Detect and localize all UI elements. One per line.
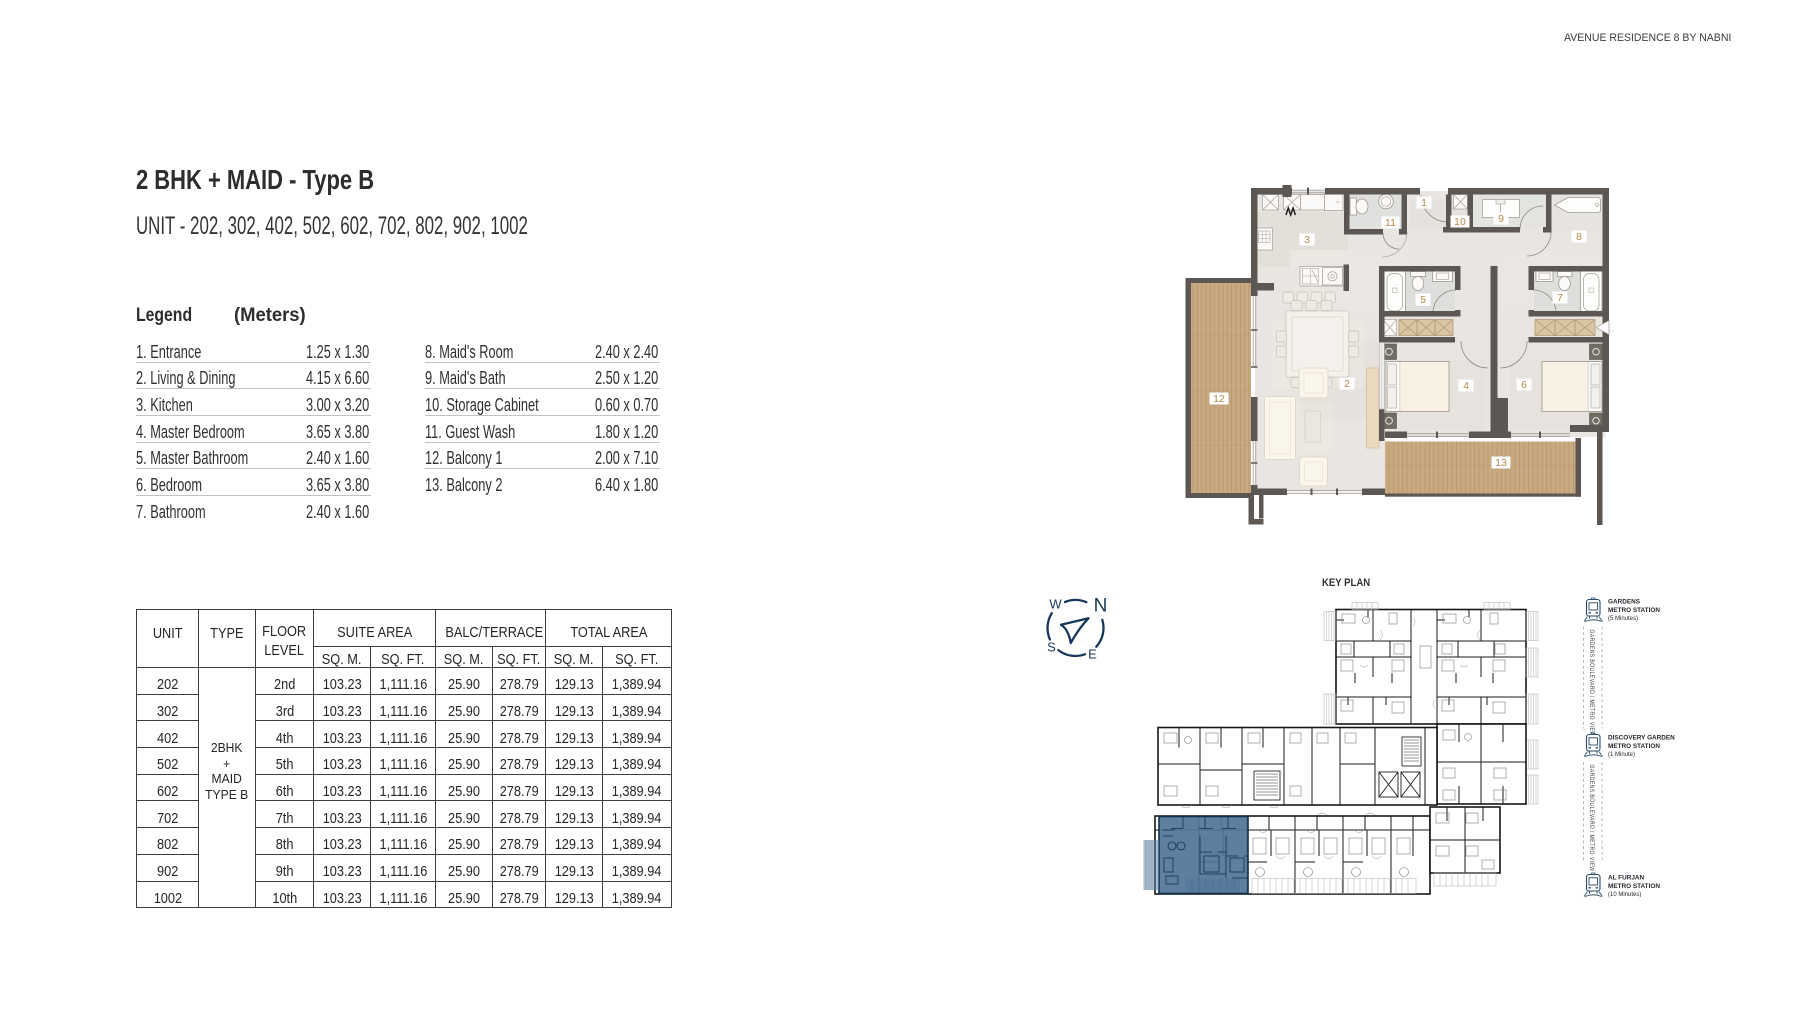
svg-text:METRO STATION: METRO STATION — [1608, 607, 1660, 614]
svg-text:10: 10 — [1454, 216, 1466, 228]
svg-text:3: 3 — [1304, 234, 1310, 246]
svg-text:11: 11 — [1385, 217, 1396, 229]
svg-text:2: 2 — [1344, 378, 1350, 390]
svg-text:GARDENS BOULEVARD / METRO VIEW: GARDENS BOULEVARD / METRO VIEW — [1588, 765, 1595, 872]
svg-text:1: 1 — [1421, 197, 1427, 209]
svg-text:12: 12 — [1213, 393, 1225, 405]
svg-text:(10 Minutes): (10 Minutes) — [1608, 892, 1641, 898]
svg-text:DISCOVERY GARDEN: DISCOVERY GARDEN — [1608, 735, 1675, 742]
svg-text:W: W — [1049, 597, 1062, 612]
svg-text:8: 8 — [1576, 231, 1582, 243]
svg-text:4: 4 — [1463, 380, 1469, 392]
svg-text:GARDENS BOULEVARD / METRO VIEW: GARDENS BOULEVARD / METRO VIEW — [1588, 630, 1595, 737]
svg-text:N: N — [1094, 596, 1108, 617]
svg-text:5: 5 — [1420, 294, 1426, 306]
svg-text:13: 13 — [1495, 457, 1507, 469]
svg-text:GARDENS: GARDENS — [1608, 599, 1641, 606]
svg-text:7: 7 — [1557, 292, 1563, 304]
svg-text:(1 Minute): (1 Minute) — [1608, 752, 1635, 758]
svg-text:METRO STATION: METRO STATION — [1608, 743, 1660, 750]
svg-text:METRO STATION: METRO STATION — [1608, 883, 1660, 890]
svg-text:6: 6 — [1521, 379, 1527, 391]
svg-text:S: S — [1047, 640, 1056, 655]
svg-text:(5 Minutes): (5 Minutes) — [1608, 616, 1638, 622]
svg-text:9: 9 — [1498, 213, 1504, 225]
svg-text:E: E — [1088, 647, 1097, 662]
svg-text:AL FURJAN: AL FURJAN — [1608, 875, 1644, 882]
